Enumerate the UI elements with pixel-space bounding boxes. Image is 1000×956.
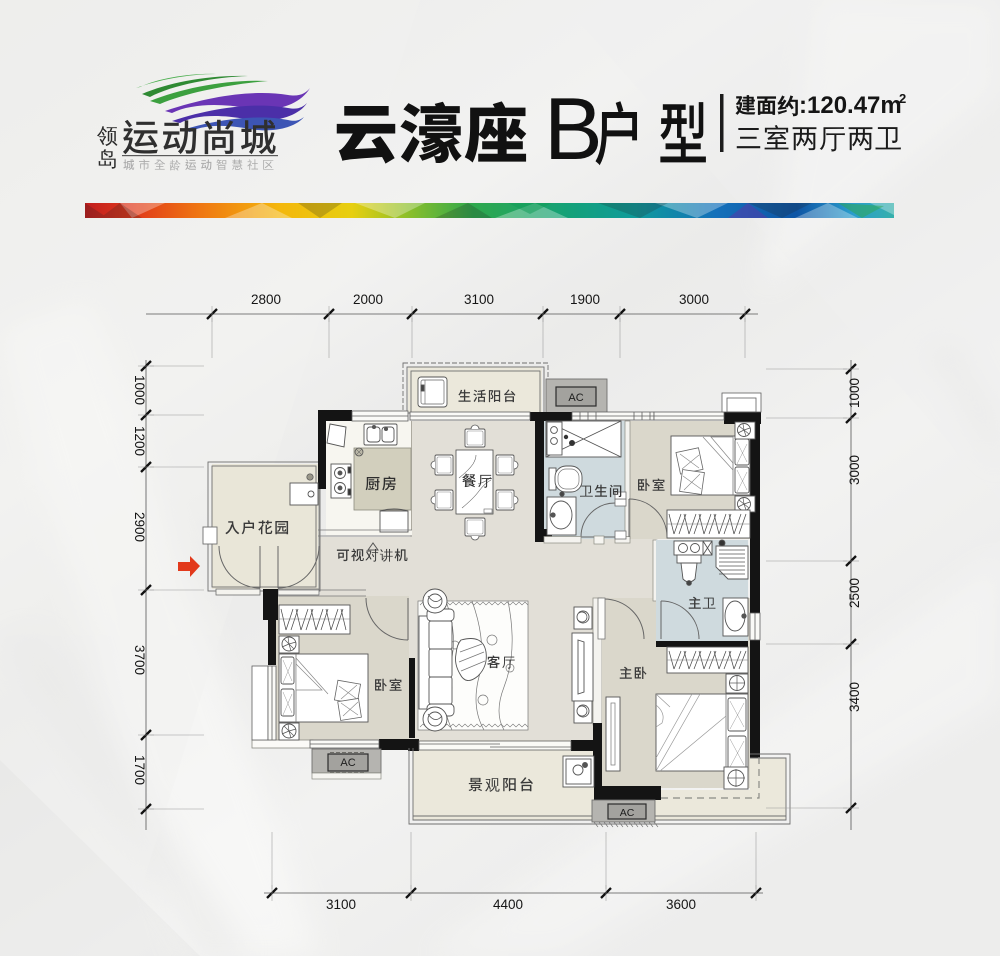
svg-text:4400: 4400 <box>493 897 523 912</box>
svg-text:3700: 3700 <box>132 645 147 675</box>
svg-text:3000: 3000 <box>847 455 862 485</box>
svg-text:1900: 1900 <box>570 292 600 307</box>
svg-text:1200: 1200 <box>132 426 147 456</box>
svg-text:B: B <box>544 79 603 178</box>
svg-text:3600: 3600 <box>666 897 696 912</box>
svg-text:AC: AC <box>568 392 583 404</box>
svg-text:2800: 2800 <box>251 292 281 307</box>
svg-text:AC: AC <box>620 807 635 819</box>
svg-text:3000: 3000 <box>679 292 709 307</box>
svg-text:2500: 2500 <box>847 578 862 608</box>
svg-text:2000: 2000 <box>353 292 383 307</box>
svg-text:1700: 1700 <box>132 755 147 785</box>
svg-text:1000: 1000 <box>847 378 862 408</box>
svg-text:3400: 3400 <box>847 682 862 712</box>
svg-text::120.47m: :120.47m <box>799 92 902 119</box>
svg-text:3100: 3100 <box>464 292 494 307</box>
svg-text:2: 2 <box>899 91 906 106</box>
svg-text:1000: 1000 <box>132 375 147 405</box>
svg-text:2900: 2900 <box>132 512 147 542</box>
svg-text:AC: AC <box>340 757 355 769</box>
svg-text:3100: 3100 <box>326 897 356 912</box>
